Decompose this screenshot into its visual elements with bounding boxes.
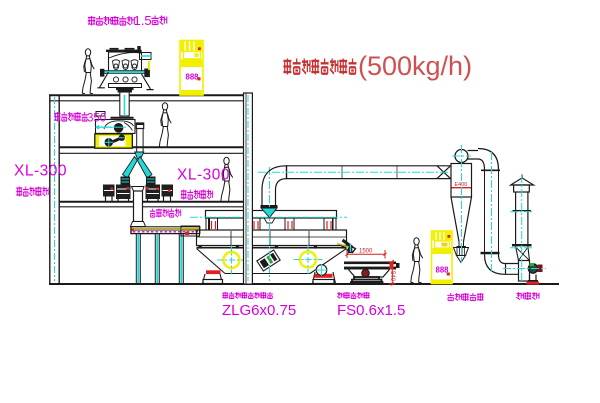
svg-text:1500: 1500 <box>359 249 373 255</box>
svg-text:XL-300: XL-300 <box>177 167 230 184</box>
svg-text:XL-300: XL-300 <box>14 163 67 180</box>
svg-text:1.5: 1.5 <box>134 13 152 28</box>
svg-text:E400: E400 <box>455 182 468 188</box>
svg-text:350: 350 <box>87 113 106 125</box>
svg-text:540: 540 <box>389 271 395 282</box>
svg-text:(500kg/h): (500kg/h) <box>358 51 472 81</box>
svg-text:FS0.6x1.5: FS0.6x1.5 <box>337 302 405 319</box>
svg-text:888: 888 <box>186 72 200 81</box>
svg-text:ZLG6x0.75: ZLG6x0.75 <box>222 302 296 319</box>
